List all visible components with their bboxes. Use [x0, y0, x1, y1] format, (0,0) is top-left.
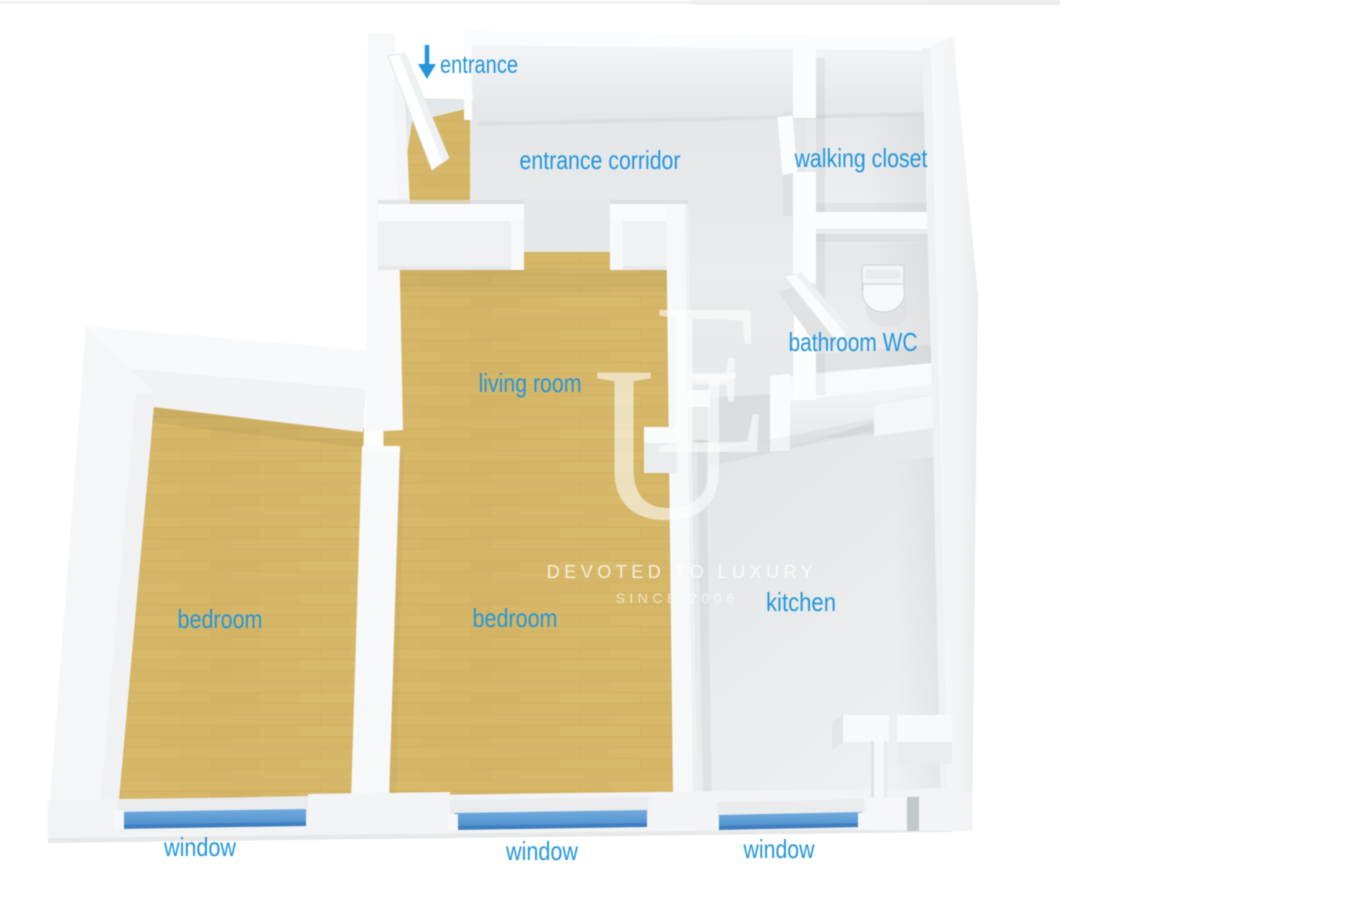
svg-text:walking closet: walking closet [794, 143, 928, 173]
svg-text:living room: living room [479, 368, 582, 398]
svg-text:kitchen: kitchen [766, 587, 836, 617]
svg-text:entrance corridor: entrance corridor [520, 145, 681, 175]
svg-text:bedroom: bedroom [178, 604, 263, 634]
svg-text:DEVOTED TO LUXURY: DEVOTED TO LUXURY [547, 562, 818, 582]
svg-text:window: window [505, 836, 578, 866]
svg-text:SINCE 2006: SINCE 2006 [616, 590, 739, 606]
svg-text:entrance: entrance [440, 51, 518, 79]
svg-text:window: window [743, 834, 815, 864]
svg-text:bedroom: bedroom [473, 603, 558, 633]
svg-text:window: window [163, 832, 236, 862]
svg-text:bathroom WC: bathroom WC [789, 327, 918, 357]
svg-text:U: U [593, 321, 741, 567]
